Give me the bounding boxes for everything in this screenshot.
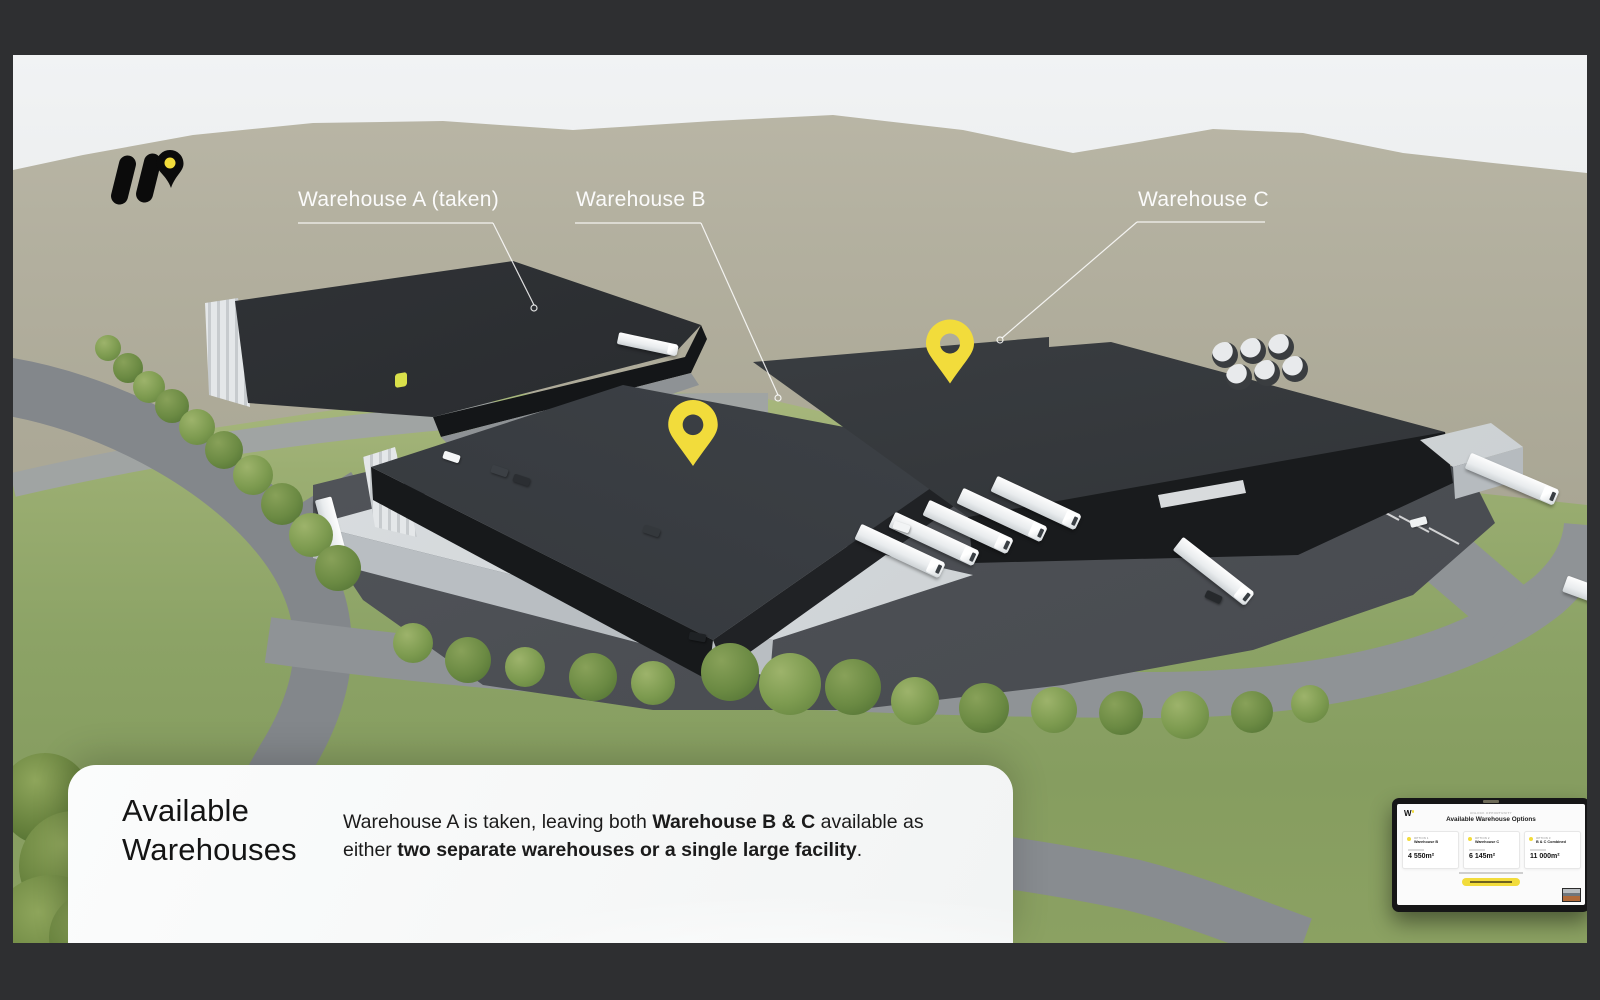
option-sublabel-placeholder (1530, 849, 1546, 851)
option-name: Warehouse B (1414, 840, 1438, 844)
brand-logo-w-pin-icon (107, 147, 187, 213)
tablet-screen: W UNLOCK OPPORTUNITY Available Warehouse… (1397, 804, 1585, 905)
body-text: . (857, 839, 862, 861)
silo (1226, 364, 1252, 390)
tree (315, 545, 361, 591)
option-sublabel-placeholder (1408, 849, 1424, 851)
pin-dot-icon (1529, 837, 1533, 841)
tree (393, 623, 433, 663)
panel-title-line1: Available (122, 791, 297, 830)
tablet-photo-thumbnail (1562, 888, 1581, 902)
option-name: B & C Combined (1536, 840, 1566, 844)
tree (1231, 691, 1273, 733)
tree (1291, 685, 1329, 723)
option-sublabel-placeholder (1469, 849, 1485, 851)
pin-dot-icon (1407, 837, 1411, 841)
tablet-eyebrow: UNLOCK OPPORTUNITY (1397, 811, 1585, 815)
screenshot-root: { "window": { "frame_color": "#2E2F31" }… (0, 0, 1600, 1000)
silo (1282, 356, 1308, 382)
tree (959, 683, 1009, 733)
warehouse-b-label: Warehouse B (576, 188, 706, 212)
body-text-bold: Warehouse B & C (652, 811, 815, 833)
tablet-camera-notch (1483, 800, 1499, 803)
tree (569, 653, 617, 701)
warehouse-c-label: Warehouse C (1138, 188, 1269, 212)
pin-dot-icon (1468, 837, 1472, 841)
option-size-value: 11 000m² (1530, 853, 1560, 860)
tree (631, 661, 675, 705)
tree (759, 653, 821, 715)
warehouse-b-pin-icon (667, 400, 719, 466)
option-card-2: OPTION 2 Warehouse C 6 145m² (1463, 831, 1520, 869)
tablet-cta-text-placeholder (1470, 881, 1512, 883)
tree (701, 643, 759, 701)
tablet-cta-button (1462, 878, 1520, 886)
warehouse-c-pin-icon (926, 318, 974, 385)
info-panel: Available Warehouses Warehouse A is take… (68, 765, 1013, 943)
option-size-value: 4 550m² (1408, 853, 1434, 860)
warehouse-a-label: Warehouse A (taken) (298, 188, 499, 212)
tree (1099, 691, 1143, 735)
tablet-heading: Available Warehouse Options (1397, 816, 1585, 823)
tree (825, 659, 881, 715)
presentation-slide: Warehouse A (taken) Warehouse B Warehous… (13, 55, 1587, 943)
body-text-bold: two separate warehouses or a single larg… (397, 839, 857, 861)
option-size-value: 6 145m² (1469, 853, 1495, 860)
tree (505, 647, 545, 687)
panel-title-line2: Warehouses (122, 830, 297, 869)
tree (891, 677, 939, 725)
silo (1254, 360, 1280, 386)
panel-body: Warehouse A is taken, leaving both Wareh… (343, 809, 953, 864)
tree (1031, 687, 1077, 733)
tablet-mockup: W UNLOCK OPPORTUNITY Available Warehouse… (1392, 798, 1587, 912)
warehouse-a-logo-mark (395, 372, 407, 388)
option-name: Warehouse C (1475, 840, 1499, 844)
option-card-1: OPTION 1 Warehouse B 4 550m² (1402, 831, 1459, 869)
tree (1161, 691, 1209, 739)
option-card-3: OPTION 3 B & C Combined 11 000m² (1524, 831, 1581, 869)
tree (445, 637, 491, 683)
body-text: Warehouse A is taken, leaving both (343, 811, 652, 833)
panel-title: Available Warehouses (122, 791, 297, 869)
tablet-note-placeholder (1459, 872, 1523, 874)
